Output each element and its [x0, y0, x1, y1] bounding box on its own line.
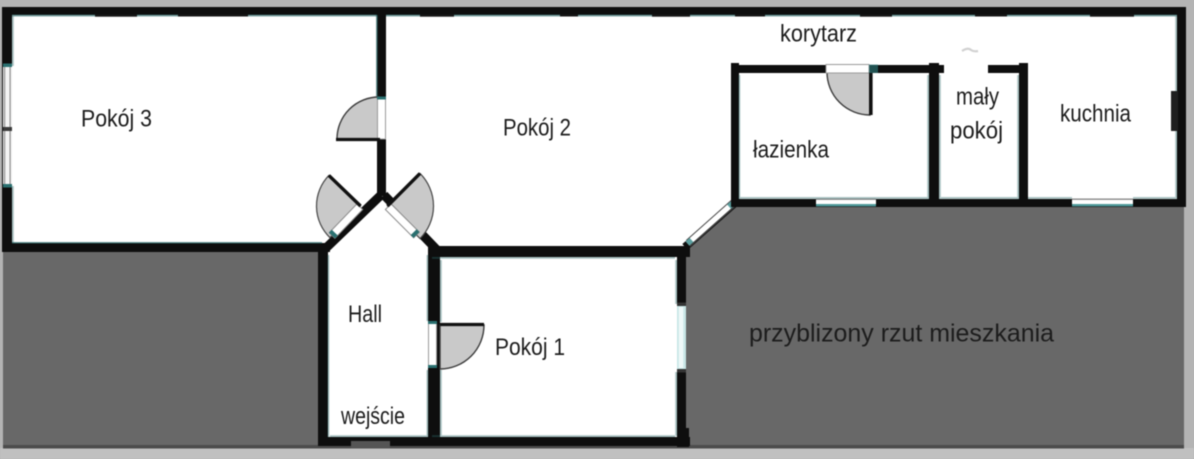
- svg-text:Hall: Hall: [348, 301, 382, 328]
- svg-text:mały: mały: [956, 84, 999, 111]
- svg-text:Pokój 3: Pokój 3: [81, 106, 152, 133]
- svg-text:Pokój 2: Pokój 2: [503, 115, 571, 142]
- svg-text:korytarz: korytarz: [780, 21, 857, 48]
- svg-text:wejście: wejście: [340, 403, 405, 430]
- svg-text:pokój: pokój: [950, 118, 1003, 145]
- svg-text:łazienka: łazienka: [753, 137, 830, 164]
- svg-text:Pokój 1: Pokój 1: [495, 334, 565, 361]
- svg-text:kuchnia: kuchnia: [1060, 101, 1132, 128]
- svg-text:przyblizony rzut mieszkania: przyblizony rzut mieszkania: [749, 320, 1054, 348]
